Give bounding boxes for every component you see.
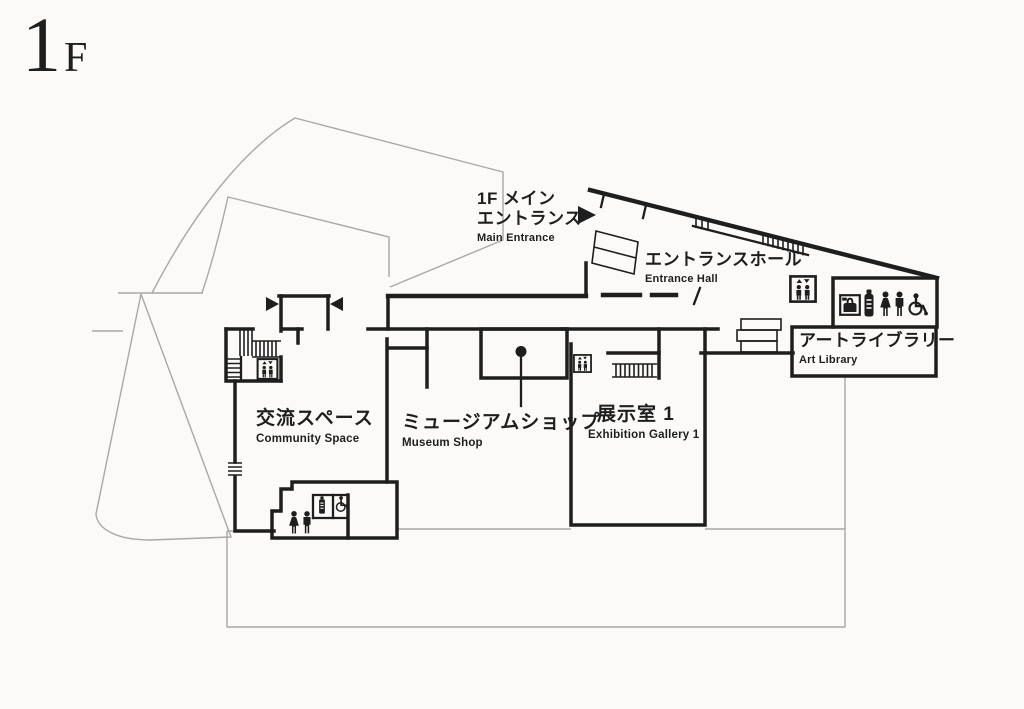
coin-locker-icon <box>840 295 860 315</box>
door-arrow-icon <box>266 297 343 311</box>
stairs-icon <box>612 364 657 377</box>
room-name-en: Exhibition Gallery 1 <box>588 429 699 441</box>
elevator-icon <box>574 355 591 372</box>
room-name-en: Art Library <box>799 354 955 366</box>
mens-restroom-icon <box>896 292 904 317</box>
room-name-jp: 展示室 1 <box>597 404 699 426</box>
reception-desk <box>592 231 638 274</box>
label-exhibition-gallery-1: 展示室 1 Exhibition Gallery 1 <box>597 404 699 441</box>
womens-restroom-icon <box>289 511 299 534</box>
room-name-jp: エントランス <box>477 209 582 229</box>
room-name-jp: 1F メイン <box>477 189 582 209</box>
label-community-space: 交流スペース Community Space <box>256 408 374 445</box>
room-name-jp: 交流スペース <box>256 408 374 430</box>
floor-map-1f: 1F 1F メイン エントランス Main Entrance エントランスホール… <box>0 0 1024 709</box>
label-entrance-hall: エントランスホール Entrance Hall <box>645 250 802 285</box>
room-name-en: Entrance Hall <box>645 273 802 285</box>
accessible-restroom-icon <box>910 293 928 315</box>
baby-bottle-icon <box>865 290 874 317</box>
mens-restroom-icon <box>303 511 310 533</box>
room-name-en: Museum Shop <box>402 437 600 449</box>
stairs-icon <box>227 330 281 377</box>
room-name-en: Main Entrance <box>477 232 582 244</box>
stairs-icon <box>737 319 781 352</box>
building-exterior-outline <box>92 118 845 627</box>
label-main-entrance: 1F メイン エントランス Main Entrance <box>477 189 582 244</box>
museum-shop-marker-icon <box>516 346 527 406</box>
floor-number: 1 <box>22 1 61 88</box>
room-name-jp: アートライブラリー <box>799 331 955 351</box>
baby-bottle-icon <box>319 496 325 513</box>
floor-label: 1F <box>22 6 87 84</box>
room-name-en: Community Space <box>256 433 374 445</box>
floor-suffix: F <box>64 35 87 81</box>
door-threshold-marks <box>228 463 242 475</box>
elevator-icon <box>258 359 278 379</box>
label-art-library: アートライブラリー Art Library <box>799 331 955 366</box>
womens-restroom-icon <box>880 292 891 317</box>
room-name-jp: エントランスホール <box>645 250 802 270</box>
label-museum-shop: ミュージアムショップ Museum Shop <box>402 412 600 449</box>
room-name-jp: ミュージアムショップ <box>402 412 600 434</box>
